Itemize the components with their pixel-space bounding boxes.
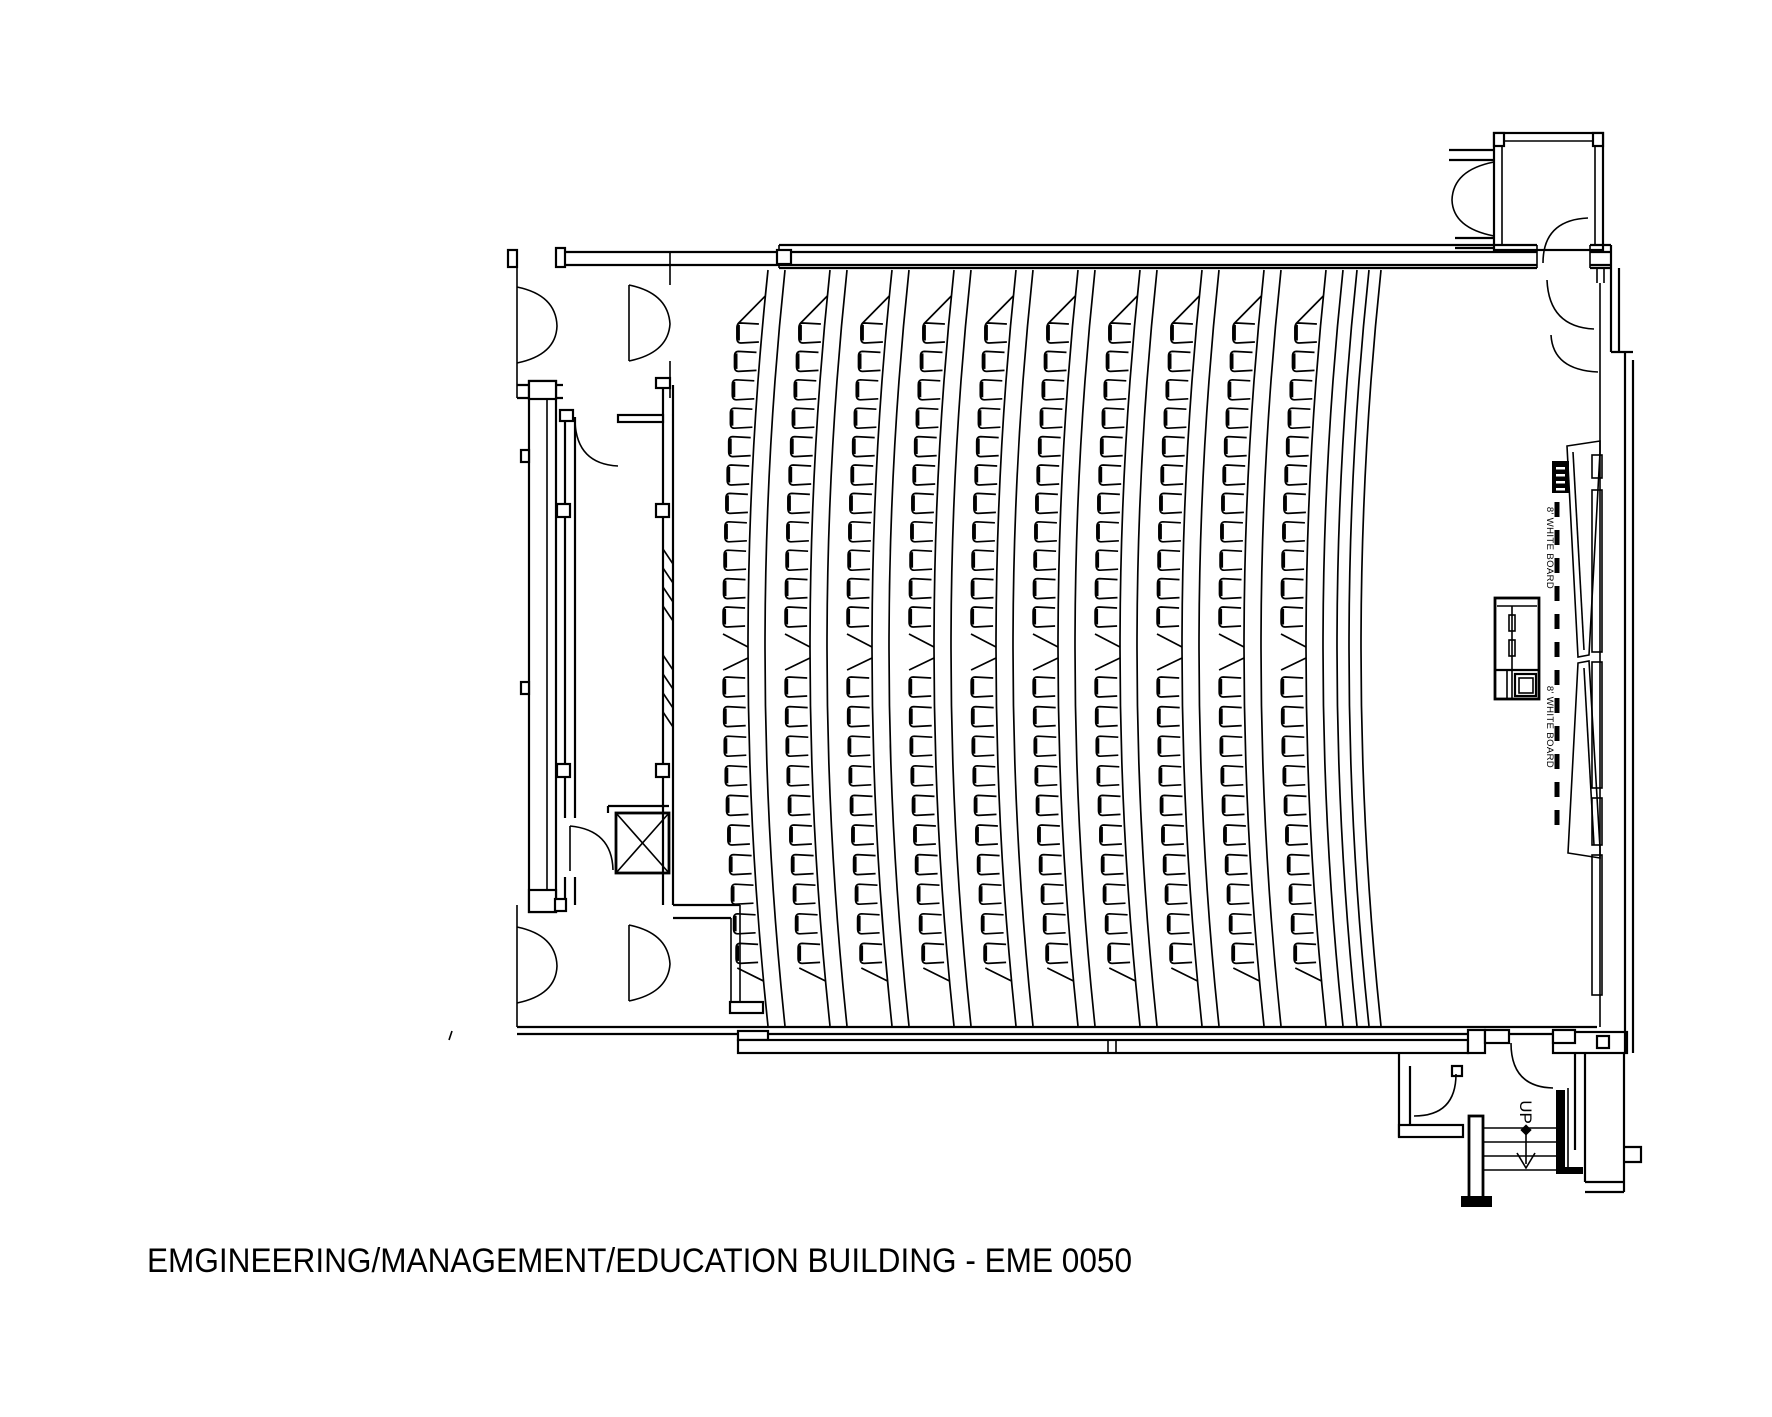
seat-back	[791, 857, 794, 873]
desk-end-cap	[1095, 634, 1120, 647]
seat-back	[1103, 886, 1106, 902]
seat-chair	[1042, 884, 1064, 904]
seat-back	[978, 410, 981, 426]
seat-back	[1040, 410, 1043, 426]
seat-back	[787, 524, 790, 540]
seat-chair	[732, 380, 754, 400]
seat-chair	[909, 677, 931, 697]
seat-back	[731, 886, 734, 902]
desk-end-cap	[1157, 658, 1182, 670]
seat-back	[979, 886, 982, 902]
seat-chair	[1095, 607, 1117, 627]
seat-back	[853, 857, 856, 873]
seat-back	[796, 353, 799, 369]
seat-back	[730, 410, 733, 426]
desk-end-cap	[861, 968, 887, 981]
desk-end-cap	[1095, 658, 1120, 670]
seat-back	[1221, 524, 1224, 540]
seat-chair	[910, 550, 932, 570]
desk-end-cap	[737, 968, 763, 981]
seat-back	[914, 439, 917, 455]
desk-band-edge	[951, 270, 971, 1026]
desk-end-cap	[985, 968, 1011, 981]
door-swing-icon	[1543, 218, 1588, 263]
desk-band-edge	[1323, 270, 1343, 1026]
desk-end-cap	[923, 968, 949, 981]
seat-chair	[1096, 579, 1118, 599]
seat-back	[1232, 945, 1235, 961]
seat-back	[726, 495, 729, 511]
seat-chair	[918, 380, 940, 400]
seat-chair	[794, 884, 816, 904]
seat-chair	[1164, 855, 1186, 875]
seat-back	[1282, 738, 1285, 754]
seat-chair	[792, 855, 814, 875]
seat-chair	[983, 351, 1005, 371]
seat-chair	[1042, 380, 1064, 400]
seat-chair	[724, 550, 746, 570]
x-cross-icon	[616, 813, 669, 873]
seat-back	[916, 410, 919, 426]
seat-back	[858, 353, 861, 369]
seat-chair	[850, 493, 872, 513]
seat-back	[724, 738, 727, 754]
seat-back	[1041, 886, 1044, 902]
seat-back	[1225, 857, 1228, 873]
seat-back	[1290, 382, 1293, 398]
seat-chair	[723, 677, 745, 697]
entry-vestibule-top-right	[1449, 133, 1603, 263]
seat-back	[909, 709, 912, 725]
seat-chair	[910, 579, 932, 599]
seat-back	[920, 353, 923, 369]
seat-back	[1096, 738, 1099, 754]
seat-back	[1159, 524, 1162, 540]
desk-end-cap	[847, 634, 872, 647]
seat-chair	[1100, 825, 1122, 845]
seat-chair	[1164, 408, 1186, 428]
seat-chair	[1159, 522, 1181, 542]
seat-chair	[910, 736, 932, 756]
seat-back	[1282, 552, 1285, 568]
seat-chair	[848, 579, 870, 599]
seat-back	[1295, 325, 1298, 341]
seat-chair	[785, 607, 807, 627]
desk-end-cap	[1048, 296, 1076, 324]
seat-chair	[1035, 522, 1057, 542]
seat-chair	[798, 943, 820, 963]
seat-back	[975, 467, 978, 483]
seat-chair	[971, 677, 993, 697]
seat-back	[856, 382, 859, 398]
seat-back	[799, 325, 802, 341]
seat-back	[1161, 467, 1164, 483]
seat-chair	[1225, 437, 1247, 457]
door-swing-icon	[629, 925, 670, 1001]
seat-back	[729, 857, 732, 873]
seat-chair	[789, 465, 811, 485]
seat-chair	[1290, 380, 1312, 400]
seat-chair	[1036, 493, 1058, 513]
seat-back	[1294, 945, 1297, 961]
aisle-step-line	[1361, 270, 1381, 1026]
seat-back	[1219, 679, 1222, 695]
top-walls	[508, 245, 1611, 398]
seat-chair	[851, 795, 873, 815]
seat-chair	[1285, 795, 1307, 815]
seat-back	[1281, 581, 1284, 597]
seat-chair	[854, 855, 876, 875]
door-jamb	[508, 250, 517, 267]
seat-chair	[984, 943, 1006, 963]
seat-back	[911, 768, 914, 784]
seat-back	[1098, 495, 1101, 511]
seat-back	[1289, 886, 1292, 902]
seat-chair	[1226, 408, 1248, 428]
seat-back	[855, 886, 858, 902]
seat-chair	[1046, 943, 1068, 963]
seat-chair	[1038, 825, 1060, 845]
seat-chair	[1223, 465, 1245, 485]
seat-chair	[1288, 855, 1310, 875]
door-jamb	[555, 899, 566, 911]
seat-chair	[1102, 408, 1124, 428]
seat-back	[1233, 325, 1236, 341]
desk-end-cap	[1281, 658, 1306, 670]
seat-chair	[1098, 493, 1120, 513]
seat-back	[1286, 439, 1289, 455]
seat-back	[912, 495, 915, 511]
seat-back	[850, 797, 853, 813]
seat-chair	[1158, 736, 1180, 756]
seat-chair	[1096, 707, 1118, 727]
seat-chair	[847, 677, 869, 697]
seat-back	[786, 552, 789, 568]
seat-back	[726, 797, 729, 813]
seat-chair	[737, 323, 759, 343]
seat-chair	[973, 766, 995, 786]
seat-back	[1228, 382, 1231, 398]
seat-chair	[1220, 550, 1242, 570]
seat-back	[1287, 857, 1290, 873]
seat-back	[1224, 439, 1227, 455]
seat-chair	[1037, 795, 1059, 815]
seat-back	[1219, 609, 1222, 625]
wall-hatch	[663, 549, 673, 727]
seat-chair	[921, 351, 943, 371]
seat-back	[785, 581, 788, 597]
desk-end-cap	[1047, 968, 1073, 981]
seat-back	[1034, 738, 1037, 754]
desk-end-cap	[1171, 968, 1197, 981]
seat-back	[976, 439, 979, 455]
seat-back	[793, 886, 796, 902]
seat-back	[971, 581, 974, 597]
seat-chair	[1233, 323, 1255, 343]
seat-back	[1095, 581, 1098, 597]
seat-chair	[849, 522, 871, 542]
seat-chair	[734, 914, 756, 934]
seat-back	[1098, 797, 1101, 813]
seat-chair	[1228, 884, 1250, 904]
seat-chair	[799, 323, 821, 343]
seat-chair	[1160, 493, 1182, 513]
seat-chair	[853, 437, 875, 457]
seat-chair	[1223, 795, 1245, 815]
seat-chair	[786, 707, 808, 727]
seat-back	[1158, 552, 1161, 568]
seat-chair	[1221, 522, 1243, 542]
desk-end-cap	[785, 634, 810, 647]
seat-back	[725, 524, 728, 540]
seat-back	[737, 325, 740, 341]
door-stop	[557, 764, 570, 777]
seat-chair	[975, 795, 997, 815]
desk-end-cap	[971, 634, 996, 647]
seat-chair	[912, 493, 934, 513]
seat-chair	[1157, 607, 1179, 627]
seat-back	[1035, 524, 1038, 540]
seat-back	[917, 886, 920, 902]
seat-chair	[786, 736, 808, 756]
desk-end-cap	[723, 658, 748, 670]
seat-back	[732, 382, 735, 398]
seat-back	[1104, 382, 1107, 398]
seat-back	[909, 679, 912, 695]
seat-chair	[913, 465, 935, 485]
seat-chair	[787, 522, 809, 542]
seat-chair	[727, 465, 749, 485]
floor-plan-page: 8' WHITE BOARD 8' WHITE BOARD UP EMGINEE…	[0, 0, 1772, 1417]
seat-chair	[724, 579, 746, 599]
seat-back	[1281, 709, 1284, 725]
seat-back	[913, 467, 916, 483]
seat-chair	[1222, 493, 1244, 513]
seat-back	[1109, 325, 1112, 341]
seat-back	[972, 738, 975, 754]
seat-back	[1095, 709, 1098, 725]
seat-chair	[1224, 825, 1246, 845]
seat-back	[790, 439, 793, 455]
seat-chair	[980, 884, 1002, 904]
seat-back	[1102, 410, 1105, 426]
aisle-step-line	[1337, 270, 1357, 1026]
desk-end-cap	[723, 634, 748, 647]
desk-end-cap	[971, 658, 996, 670]
seat-chair	[1034, 707, 1056, 727]
seat-back	[1281, 609, 1284, 625]
entry-doors-top-left	[517, 285, 670, 363]
wall-stub	[618, 415, 663, 422]
seat-chair	[976, 825, 998, 845]
door-swing-icon	[1452, 162, 1494, 236]
desk-band-edge	[1075, 270, 1095, 1026]
seat-back	[789, 467, 792, 483]
service-corridor	[557, 378, 673, 905]
seat-chair	[848, 550, 870, 570]
seat-chair	[1282, 707, 1304, 727]
door-swing-icon	[1551, 335, 1598, 372]
seat-back	[1167, 916, 1170, 932]
seat-back	[912, 797, 915, 813]
seat-back	[1095, 679, 1098, 695]
seat-chair	[792, 408, 814, 428]
seat-chair	[858, 914, 880, 934]
door-jamb	[560, 410, 573, 421]
seat-chair	[1033, 607, 1055, 627]
seat-back	[1036, 495, 1039, 511]
aisle-step-line	[1349, 270, 1369, 1026]
stray-mark	[449, 1031, 452, 1040]
stair-rail	[1469, 1116, 1483, 1205]
seat-back	[1099, 467, 1102, 483]
seat-chair	[1290, 884, 1312, 904]
desk-end-cap	[1219, 658, 1244, 670]
seat-chair	[978, 408, 1000, 428]
seat-back	[785, 709, 788, 725]
seat-back	[974, 797, 977, 813]
seat-back	[734, 353, 737, 369]
seat-back	[1033, 581, 1036, 597]
seat-chair	[1099, 465, 1121, 485]
whiteboard-label-lower: 8' WHITE BOARD	[1544, 686, 1555, 768]
seat-chair	[730, 855, 752, 875]
seat-chair	[1282, 550, 1304, 570]
seat-back	[971, 609, 974, 625]
door-stop	[656, 764, 669, 777]
desk-end-cap	[1110, 296, 1138, 324]
seat-back	[849, 768, 852, 784]
seat-chair	[977, 437, 999, 457]
seat-chair	[786, 579, 808, 599]
seat-back	[1230, 353, 1233, 369]
seat-chair	[972, 707, 994, 727]
seat-chair	[972, 550, 994, 570]
seat-back	[848, 552, 851, 568]
seat-chair	[916, 408, 938, 428]
seat-chair	[918, 884, 940, 904]
seat-chair	[729, 437, 751, 457]
seat-chair	[1171, 323, 1193, 343]
seat-back	[849, 524, 852, 540]
seat-chair	[856, 884, 878, 904]
seat-chair	[1230, 914, 1252, 934]
seat-back	[909, 581, 912, 597]
door-swing-icon	[1414, 1074, 1456, 1116]
seat-back	[911, 524, 914, 540]
seat-back	[976, 827, 979, 843]
seat-back	[1035, 768, 1038, 784]
seat-chair	[724, 736, 746, 756]
seat-chair	[852, 825, 874, 845]
seat-chair	[1287, 437, 1309, 457]
door-swing-icon	[517, 287, 557, 363]
seat-back	[1288, 410, 1291, 426]
seat-chair	[1039, 437, 1061, 457]
seat-back	[852, 827, 855, 843]
seat-chair	[1158, 550, 1180, 570]
seat-back	[972, 552, 975, 568]
seat-back	[847, 581, 850, 597]
seat-chair	[1034, 579, 1056, 599]
seat-back	[1229, 916, 1232, 932]
seat-chair	[848, 736, 870, 756]
seat-chair	[1104, 380, 1126, 400]
seat-chair	[1101, 437, 1123, 457]
seat-chair	[1232, 943, 1254, 963]
seat-chair	[1096, 736, 1118, 756]
desk-band-edge	[1261, 270, 1281, 1026]
stairs-up-label: UP	[1516, 1100, 1535, 1124]
seat-back	[723, 679, 726, 695]
seat-back	[1160, 797, 1163, 813]
seat-chair	[723, 607, 745, 627]
seat-chair	[1096, 550, 1118, 570]
seat-back	[981, 916, 984, 932]
seat-back	[1159, 768, 1162, 784]
seat-chair	[1106, 914, 1128, 934]
desk-end-cap	[909, 634, 934, 647]
seat-chair	[914, 825, 936, 845]
door-swing-icon	[517, 927, 557, 1003]
seat-chair	[1040, 855, 1062, 875]
seat-chair	[1163, 437, 1185, 457]
desk-end-cap	[1233, 968, 1259, 981]
seat-back	[1108, 945, 1111, 961]
seat-back	[973, 524, 976, 540]
seat-chair	[1034, 550, 1056, 570]
seat-back	[1038, 827, 1041, 843]
seat-chair	[1219, 607, 1241, 627]
seat-back	[857, 916, 860, 932]
door-swing-icon	[570, 826, 613, 871]
desk-band-edge	[1013, 270, 1033, 1026]
wall-joint	[777, 250, 791, 264]
seat-chair	[1161, 465, 1183, 485]
equipment-marker	[1552, 461, 1569, 493]
seat-chair	[1044, 914, 1066, 934]
seat-chair	[725, 522, 747, 542]
seat-back	[910, 738, 913, 754]
door-swing-icon	[575, 422, 618, 466]
seat-back	[724, 552, 727, 568]
seat-chair	[1159, 766, 1181, 786]
seat-chair	[1286, 825, 1308, 845]
seat-chair	[848, 707, 870, 727]
seat-back	[982, 353, 985, 369]
seat-chair	[859, 351, 881, 371]
seat-back	[848, 738, 851, 754]
seat-chair	[972, 579, 994, 599]
seat-chair	[785, 677, 807, 697]
up-arrow-icon	[1517, 1124, 1535, 1168]
seat-back	[922, 945, 925, 961]
seat-back	[910, 552, 913, 568]
corridor-walls-left	[517, 252, 563, 398]
stair-treads	[1483, 1128, 1556, 1170]
seat-chair	[860, 943, 882, 963]
door-stop	[656, 504, 669, 517]
bottom-walls	[449, 899, 1627, 1053]
seat-chair	[1221, 766, 1243, 786]
seat-back	[1033, 709, 1036, 725]
desk-end-cap	[986, 296, 1014, 324]
desk-end-cap	[1296, 296, 1324, 324]
seat-back	[1157, 581, 1160, 597]
seat-back	[1223, 467, 1226, 483]
seat-back	[1222, 797, 1225, 813]
seat-chair	[1220, 707, 1242, 727]
